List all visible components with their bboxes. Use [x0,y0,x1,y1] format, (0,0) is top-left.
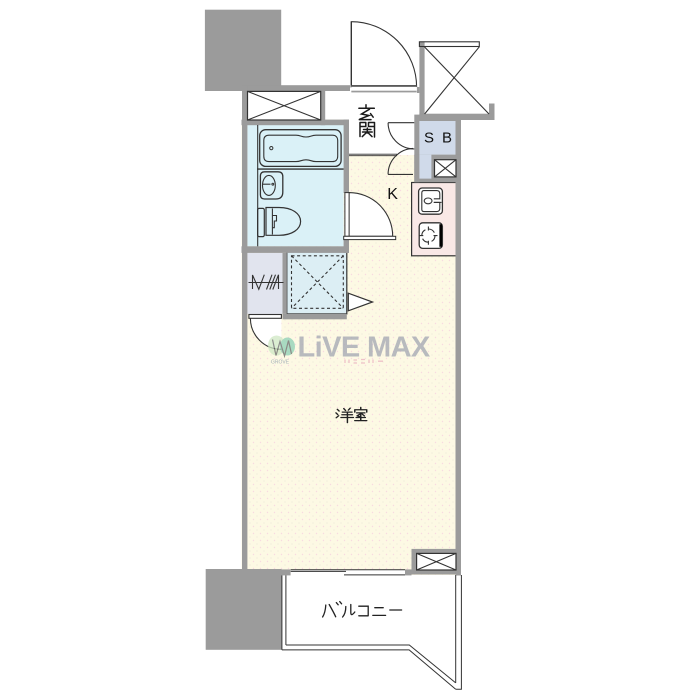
svg-text:K: K [387,186,398,203]
svg-text:B: B [442,130,452,147]
svg-text:GROVE: GROVE [271,360,290,366]
svg-text:S: S [424,130,434,147]
svg-text:LiVE MAX: LiVE MAX [298,332,431,364]
